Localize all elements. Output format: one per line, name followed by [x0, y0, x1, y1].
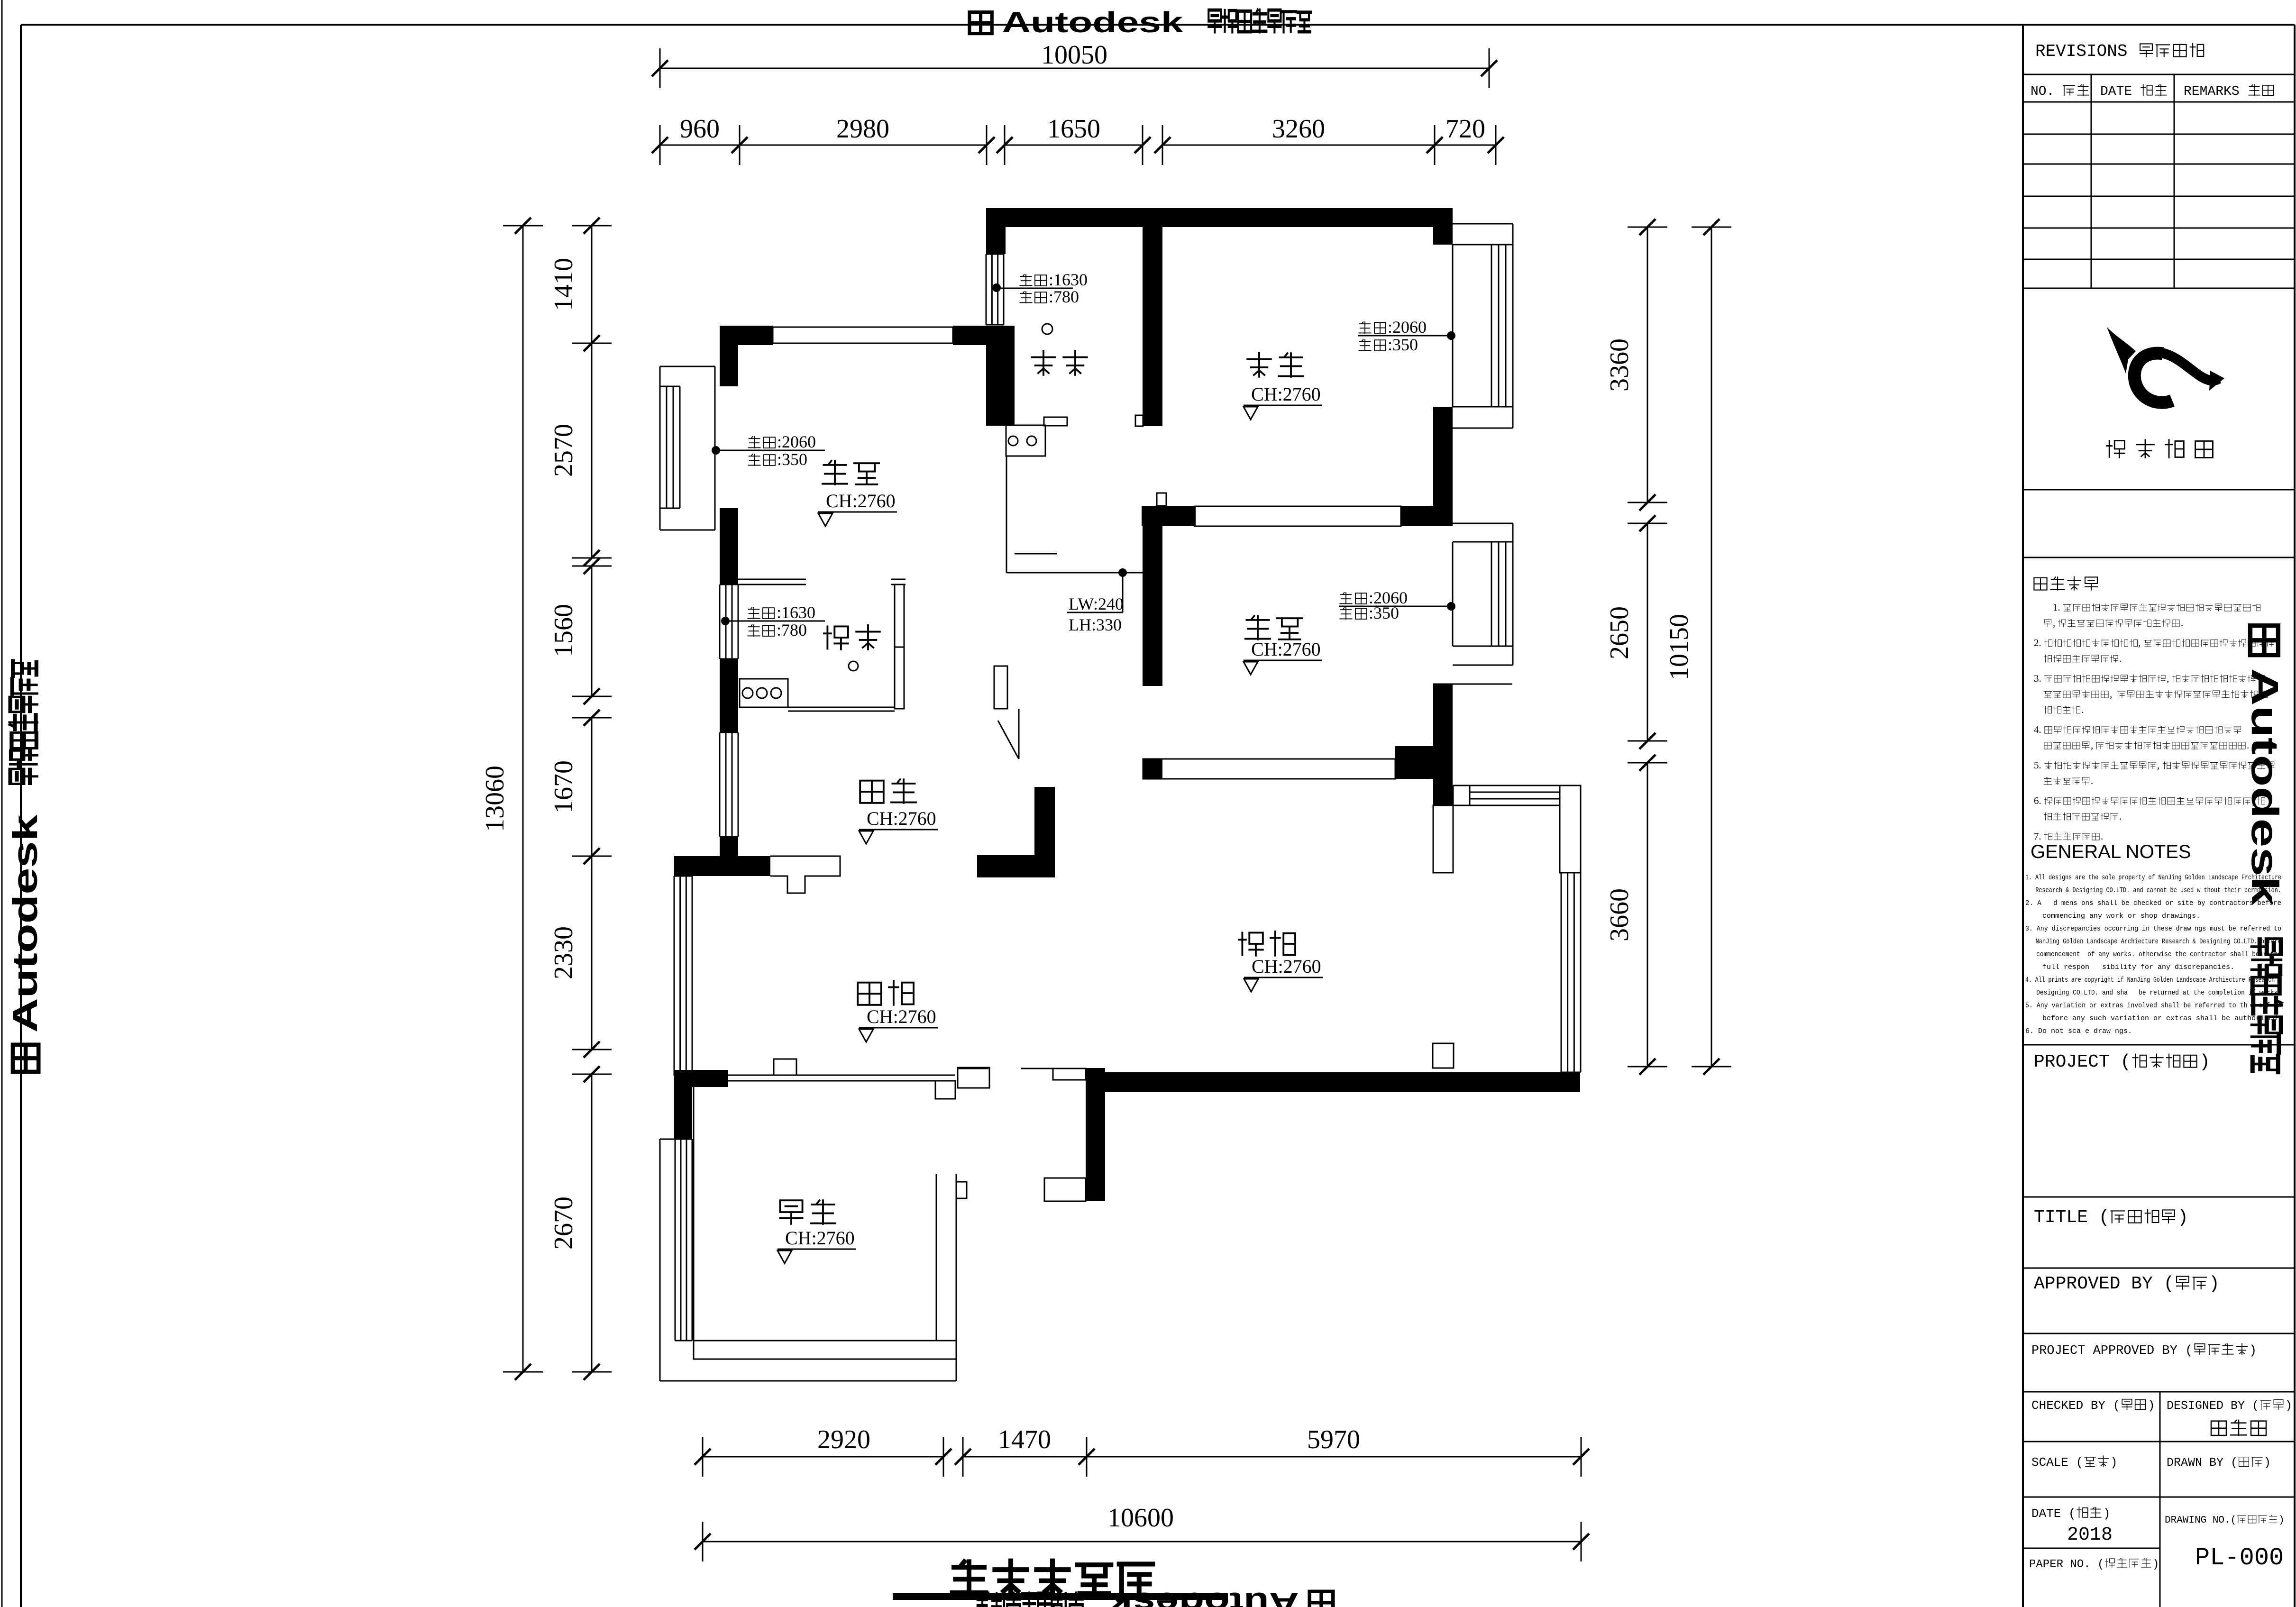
svg-text:720: 720	[1445, 114, 1485, 144]
svg-text:.: .	[2101, 831, 2103, 842]
svg-text:TITLE (: TITLE (	[2034, 1207, 2110, 1228]
svg-text:commencement of any works. ot: commencement of any works. otherwise the…	[2025, 950, 2281, 959]
svg-text::2060: :2060	[777, 432, 816, 451]
svg-text:Designing CO.LTD. and sha be: Designing CO.LTD. and sha be returned at…	[2025, 989, 2281, 997]
svg-text:2650: 2650	[1605, 606, 1634, 659]
svg-text:13060: 13060	[480, 766, 510, 832]
svg-text:1410: 1410	[549, 258, 578, 311]
svg-text:2670: 2670	[549, 1196, 578, 1250]
svg-text:CH:2760: CH:2760	[826, 490, 896, 511]
svg-text:5. Any variation or extras inv: 5. Any variation or extras involved shal…	[2025, 1002, 2281, 1010]
svg-text:,: ,	[2157, 759, 2159, 771]
svg-text:PROJECT APPROVED BY (: PROJECT APPROVED BY (	[2031, 1344, 2193, 1358]
svg-text::350: :350	[1369, 603, 1399, 622]
svg-text:): )	[2110, 1455, 2118, 1470]
svg-text:full respon sibility for any: full respon sibility for any discrepanci…	[2025, 963, 2234, 971]
svg-text:CH:2760: CH:2760	[1252, 956, 1321, 977]
svg-text:): )	[2249, 1344, 2257, 1358]
svg-text:DESIGNED BY (: DESIGNED BY (	[2167, 1399, 2259, 1413]
svg-text:2. A d mens ons shall be che: 2. A d mens ons shall be checked or site…	[2025, 899, 2281, 907]
svg-text:.: .	[2247, 740, 2249, 751]
svg-text:.: .	[2091, 775, 2093, 786]
svg-text:PAPER NO. (: PAPER NO. (	[2029, 1558, 2104, 1571]
svg-text:before any such variation or e: before any such variation or extras shal…	[2025, 1014, 2281, 1023]
svg-text:4. All prints are copyright if: 4. All prints are copyright if NanJing G…	[2025, 976, 2281, 984]
svg-text:CH:2760: CH:2760	[1251, 383, 1321, 405]
svg-text:6. Do not sca e draw ngs.: 6. Do not sca e draw ngs.	[2025, 1027, 2132, 1035]
svg-text:2920: 2920	[817, 1425, 870, 1454]
svg-text:,: ,	[2252, 795, 2254, 806]
svg-text:): )	[2278, 1515, 2285, 1526]
svg-text:CH:2760: CH:2760	[1251, 639, 1321, 660]
svg-text:,: ,	[2138, 637, 2140, 648]
svg-text:DRAWN BY (: DRAWN BY (	[2167, 1456, 2238, 1470]
svg-text:GENERAL NOTES: GENERAL NOTES	[2031, 841, 2191, 862]
svg-text:2018: 2018	[2067, 1525, 2113, 1546]
svg-text:10150: 10150	[1665, 614, 1694, 680]
svg-text:): )	[2264, 1456, 2271, 1470]
svg-text:SCALE (: SCALE (	[2031, 1455, 2083, 1470]
svg-text:commencing any work or shop dr: commencing any work or shop drawings.	[2025, 912, 2200, 920]
svg-text:): )	[2148, 1398, 2155, 1413]
svg-text:CHECKED BY (: CHECKED BY (	[2031, 1398, 2120, 1413]
svg-text:3.: 3.	[2034, 673, 2044, 684]
svg-text:): )	[2152, 1558, 2159, 1571]
svg-text:3260: 3260	[1272, 114, 1325, 144]
svg-text:DATE (: DATE (	[2031, 1507, 2076, 1521]
svg-text:2330: 2330	[549, 926, 578, 979]
svg-text::350: :350	[777, 450, 807, 469]
svg-text:1670: 1670	[549, 760, 578, 813]
svg-text:3660: 3660	[1605, 888, 1634, 941]
svg-text:Research & Designing CO.LTD. a: Research & Designing CO.LTD. and cannot …	[2025, 886, 2281, 895]
svg-text:1560: 1560	[549, 604, 578, 657]
svg-text:960: 960	[680, 114, 720, 144]
svg-text:CH:2760: CH:2760	[867, 808, 936, 829]
svg-text:2.: 2.	[2034, 637, 2044, 648]
svg-text:.: .	[2081, 704, 2084, 715]
svg-text:1. All designs are the sole pr: 1. All designs are the sole property of …	[2025, 874, 2281, 882]
svg-text::1630: :1630	[777, 603, 815, 622]
svg-text:7.: 7.	[2034, 831, 2044, 842]
svg-text:): )	[2103, 1507, 2111, 1521]
svg-text:6.: 6.	[2034, 795, 2044, 806]
svg-text:5970: 5970	[1307, 1425, 1360, 1454]
svg-text:LH:330: LH:330	[1069, 615, 1122, 634]
svg-text::350: :350	[1388, 335, 1418, 354]
svg-text::780: :780	[777, 621, 807, 639]
svg-text:NO.: NO.	[2031, 84, 2062, 99]
svg-text:,: ,	[2053, 617, 2055, 629]
svg-text:4.: 4.	[2034, 724, 2044, 735]
svg-text:Autodesk: Autodesk	[5, 814, 45, 1032]
svg-text:10050: 10050	[1041, 40, 1107, 70]
svg-text::780: :780	[1049, 287, 1079, 306]
svg-text:REVISIONS: REVISIONS	[2035, 42, 2138, 61]
svg-text:5.: 5.	[2034, 759, 2044, 771]
svg-text:Autodesk: Autodesk	[2244, 668, 2286, 906]
svg-text:,: ,	[2091, 740, 2093, 751]
svg-text:CH:2760: CH:2760	[785, 1227, 855, 1249]
svg-text:): )	[2177, 1207, 2188, 1228]
svg-text:): )	[2285, 1399, 2292, 1413]
svg-text:CH:2760: CH:2760	[867, 1006, 936, 1027]
svg-text:DATE: DATE	[2100, 84, 2140, 99]
svg-text:APPROVED BY (: APPROVED BY (	[2034, 1274, 2174, 1294]
svg-text:3360: 3360	[1605, 338, 1634, 392]
svg-text:): )	[2199, 1052, 2210, 1072]
svg-text::2060: :2060	[1388, 318, 1427, 337]
svg-text:LW:240: LW:240	[1069, 594, 1124, 613]
svg-text:PROJECT (: PROJECT (	[2034, 1052, 2131, 1072]
svg-text::1630: :1630	[1049, 270, 1088, 289]
svg-text:PL-000: PL-000	[2195, 1544, 2284, 1572]
svg-text:DRAWING NO.(: DRAWING NO.(	[2165, 1515, 2236, 1526]
svg-text:10600: 10600	[1107, 1503, 1174, 1533]
svg-text:,: ,	[2110, 688, 2115, 700]
svg-text:1.: 1.	[2053, 602, 2063, 613]
svg-text:.: .	[2181, 617, 2183, 629]
svg-text:.: .	[2119, 653, 2122, 664]
svg-text:1470: 1470	[998, 1425, 1051, 1454]
svg-text:3. Any discrepancies occurring: 3. Any discrepancies occurring in these …	[2025, 925, 2281, 933]
svg-text:2980: 2980	[836, 114, 889, 144]
svg-text:REMARKS: REMARKS	[2184, 84, 2247, 99]
svg-text:,: ,	[2167, 673, 2169, 684]
svg-text:1650: 1650	[1047, 114, 1100, 144]
svg-text:Autodesk: Autodesk	[1002, 6, 1183, 38]
svg-text:2570: 2570	[549, 424, 578, 477]
svg-text:): )	[2209, 1274, 2220, 1294]
svg-text:.: .	[2119, 811, 2122, 822]
svg-text:NanJing Golden Landscape Archi: NanJing Golden Landscape Archiecture Res…	[2025, 938, 2281, 946]
